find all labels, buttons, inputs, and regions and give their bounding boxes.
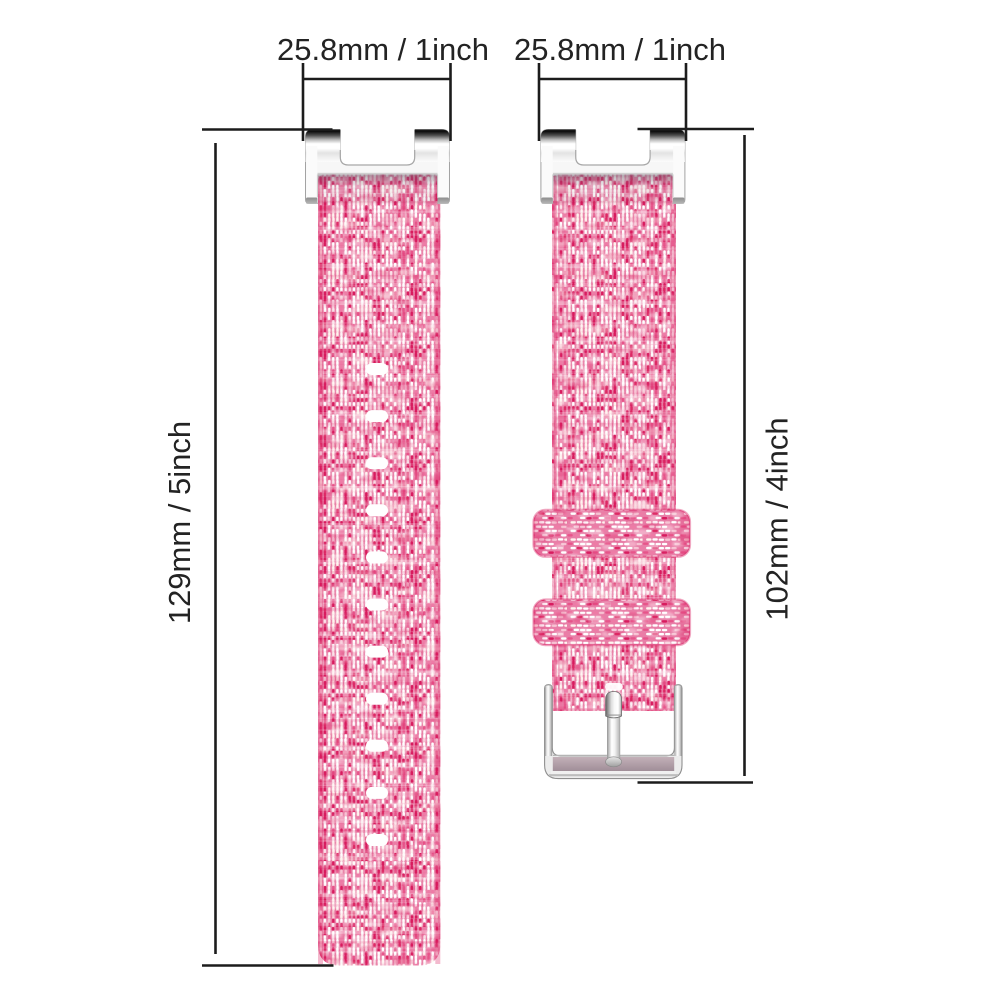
svg-text:25.8mm / 1inch: 25.8mm / 1inch [514, 32, 726, 67]
svg-text:129mm / 5inch: 129mm / 5inch [162, 421, 197, 624]
svg-text:25.8mm / 1inch: 25.8mm / 1inch [277, 32, 489, 67]
svg-text:102mm / 4inch: 102mm / 4inch [760, 417, 795, 620]
